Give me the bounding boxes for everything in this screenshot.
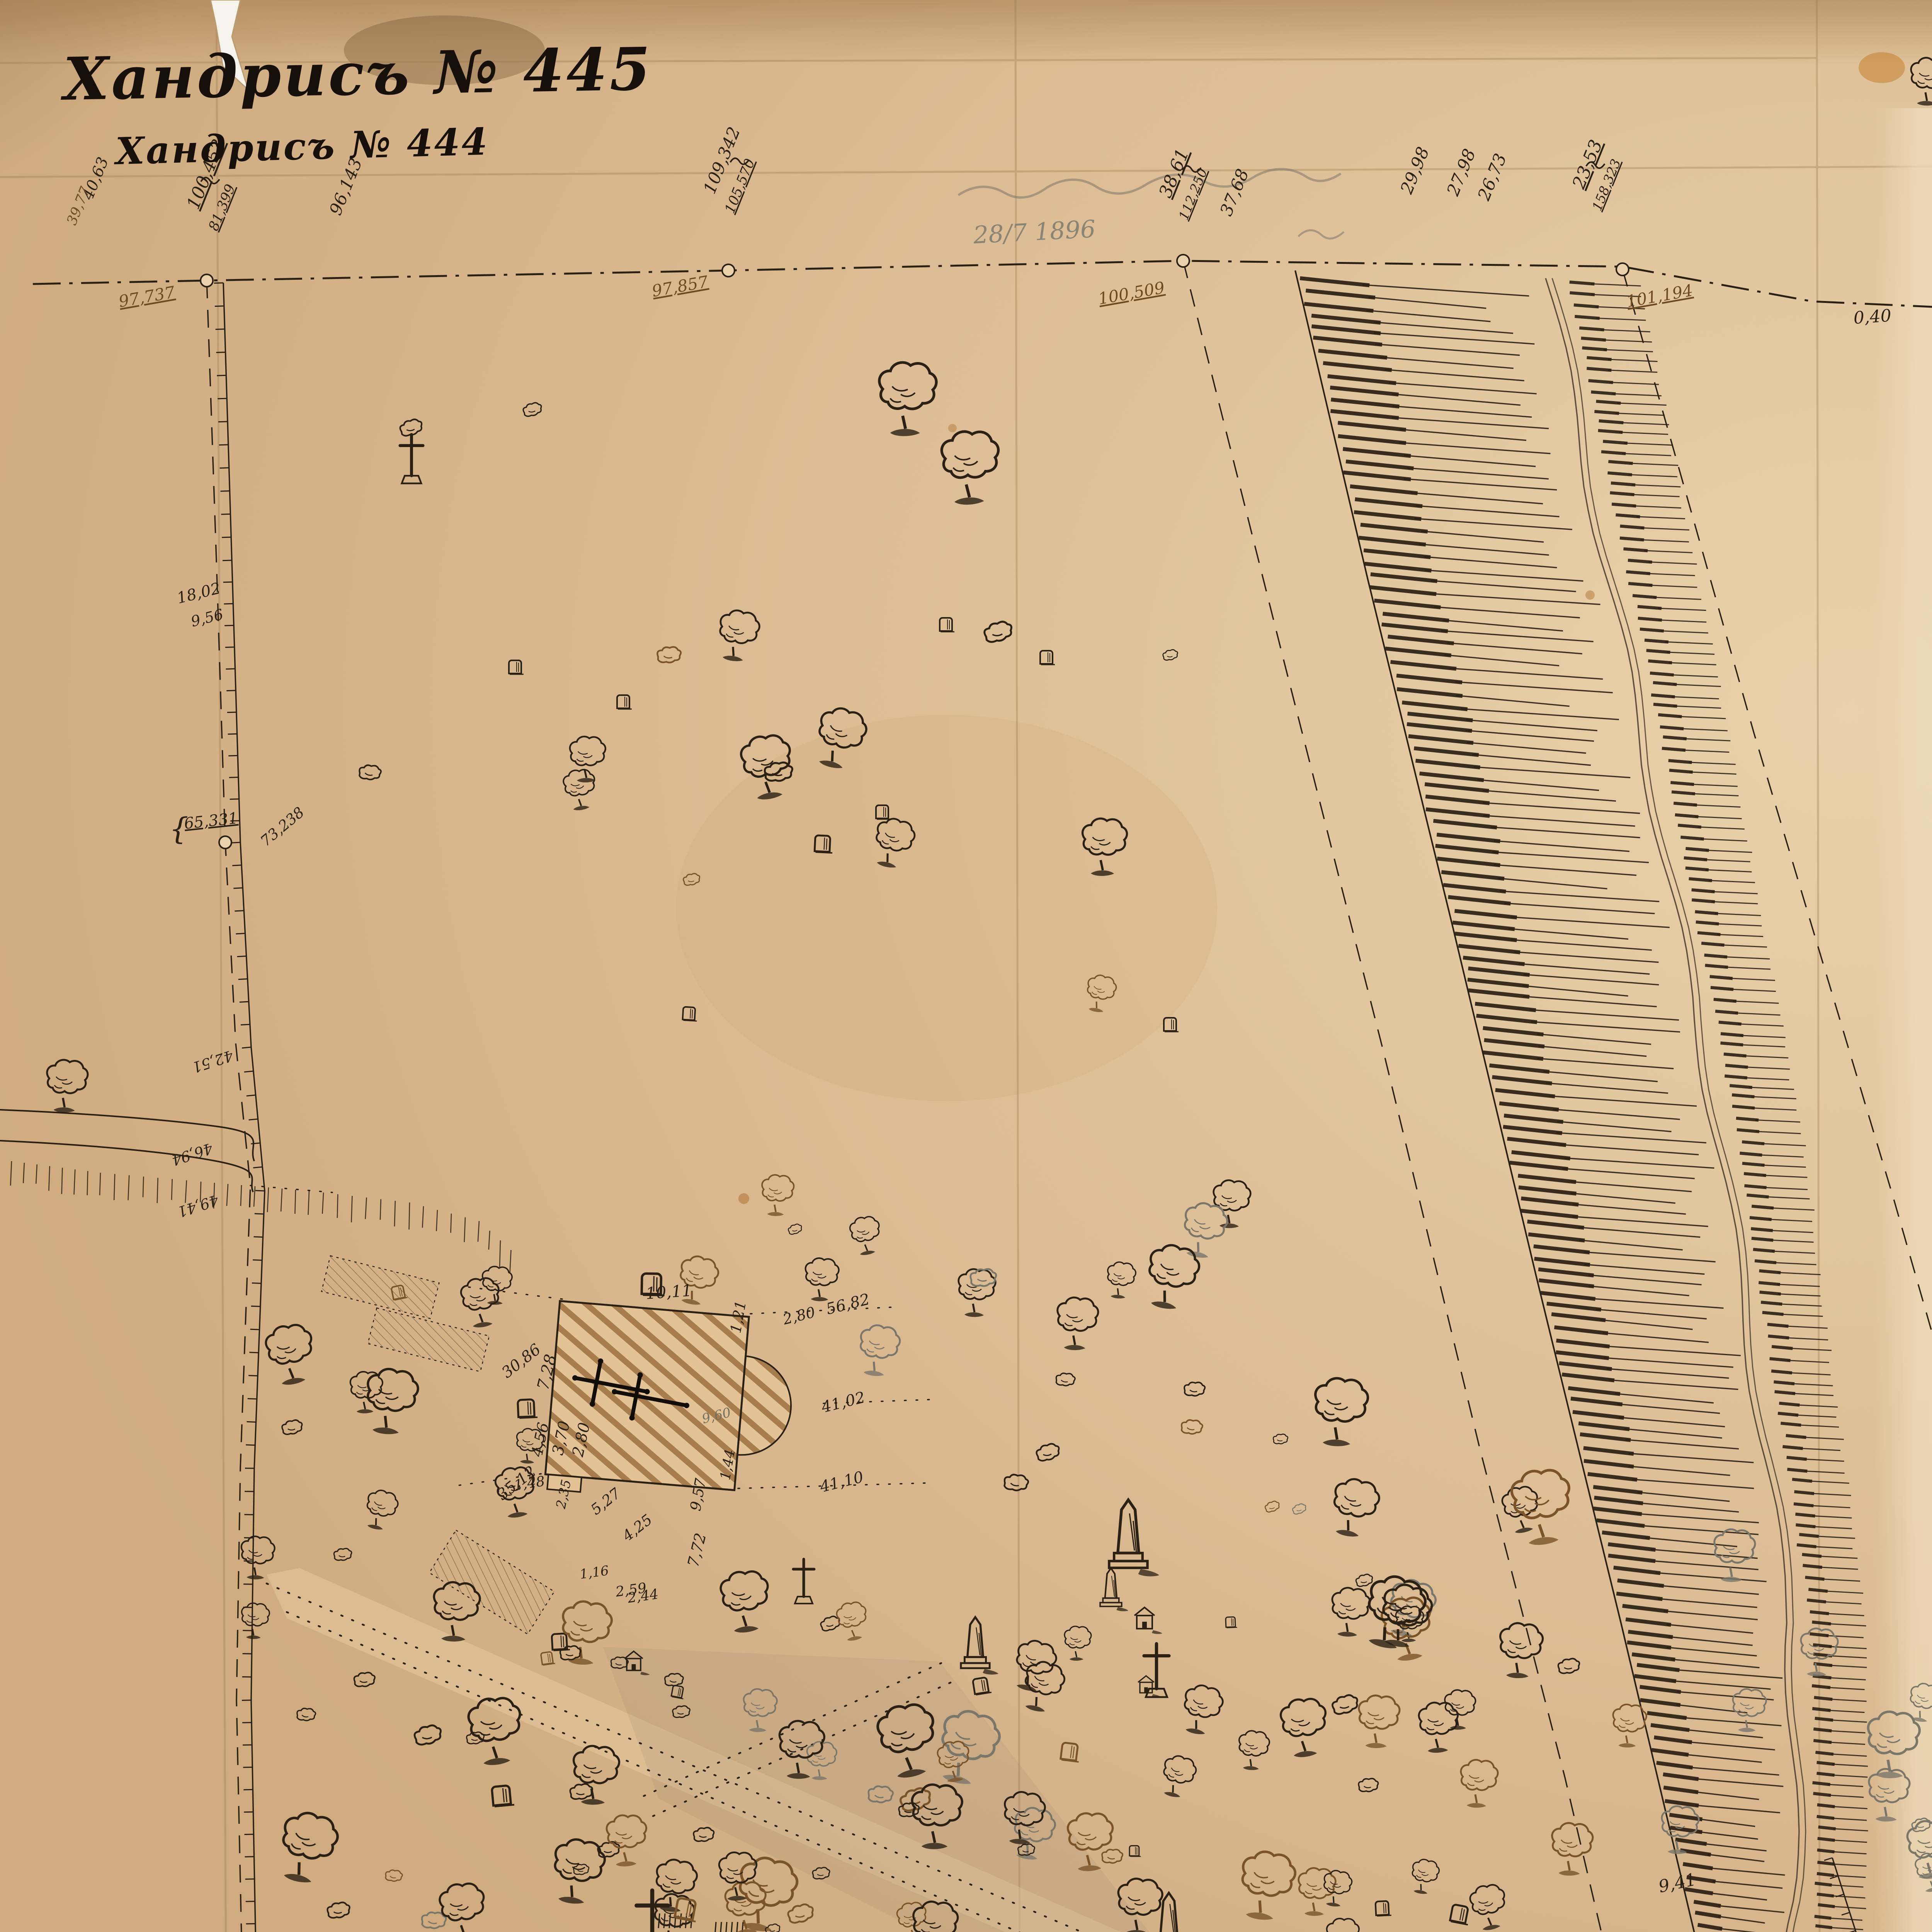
fence-tick bbox=[232, 865, 241, 866]
hachure bbox=[1675, 815, 1698, 817]
fence-tick bbox=[219, 445, 228, 445]
hachure bbox=[1742, 1142, 1764, 1144]
grass-tick bbox=[62, 1168, 63, 1194]
fence-tick bbox=[230, 799, 239, 799]
hachure bbox=[1695, 912, 1718, 913]
hachure bbox=[1752, 1206, 1774, 1208]
hachure bbox=[1684, 858, 1707, 860]
hachure bbox=[1808, 1589, 1828, 1591]
hachure bbox=[1770, 1359, 1791, 1361]
hachure bbox=[1582, 348, 1607, 350]
hachure bbox=[1817, 1762, 1835, 1764]
hachure bbox=[1762, 1313, 1784, 1315]
hachure bbox=[1720, 1043, 1743, 1045]
hachure bbox=[1658, 715, 1682, 717]
fence-tick bbox=[248, 1376, 258, 1376]
hachure bbox=[1747, 1195, 1769, 1197]
hachure bbox=[1812, 1622, 1831, 1624]
hachure bbox=[1750, 1218, 1772, 1219]
hachure bbox=[1672, 792, 1695, 794]
fence-tick bbox=[240, 1002, 249, 1002]
hachure bbox=[1678, 825, 1701, 827]
hachure bbox=[1624, 549, 1648, 551]
hachure bbox=[1650, 673, 1674, 675]
fence-tick bbox=[227, 712, 236, 713]
hachure bbox=[1610, 493, 1634, 495]
hachure bbox=[1608, 473, 1632, 475]
hachure bbox=[1810, 1634, 1829, 1636]
hachure bbox=[1815, 1916, 1831, 1918]
hachure bbox=[1721, 1034, 1743, 1036]
hachure bbox=[1653, 704, 1677, 706]
hachure bbox=[1767, 1324, 1789, 1326]
hachure bbox=[1640, 629, 1664, 631]
hachure bbox=[1737, 1130, 1759, 1132]
hachure bbox=[1768, 1336, 1789, 1338]
hachure bbox=[1817, 1773, 1835, 1775]
hachure bbox=[1620, 538, 1644, 540]
hachure bbox=[1714, 999, 1736, 1001]
hachure bbox=[1603, 441, 1627, 443]
hachure bbox=[1704, 955, 1727, 957]
hachure bbox=[1579, 328, 1604, 330]
hachure bbox=[1725, 1076, 1747, 1078]
hachure bbox=[1753, 1249, 1775, 1251]
hachure bbox=[1574, 305, 1599, 307]
hachure bbox=[1587, 358, 1612, 360]
map-annotation: 10,11 bbox=[645, 1281, 692, 1303]
survey-point bbox=[201, 274, 213, 287]
hachure bbox=[1599, 421, 1624, 423]
hachure bbox=[1628, 583, 1652, 585]
sheet-title: Хандрисъ № 445 bbox=[60, 34, 653, 114]
fence-tick bbox=[254, 1237, 263, 1237]
hachure bbox=[1692, 890, 1715, 892]
fence-tick bbox=[216, 352, 226, 353]
hachure bbox=[1611, 483, 1635, 485]
hachure bbox=[1732, 1106, 1755, 1108]
hachure bbox=[1802, 1554, 1821, 1556]
hachure bbox=[1608, 461, 1633, 463]
fence-tick bbox=[225, 647, 235, 648]
church-nave bbox=[545, 1301, 749, 1490]
hachure bbox=[1812, 1709, 1830, 1711]
hachure bbox=[1761, 1302, 1782, 1304]
fence-tick bbox=[214, 283, 223, 283]
fence-tick bbox=[222, 537, 231, 537]
hachure bbox=[1787, 1469, 1807, 1471]
hachure bbox=[1626, 572, 1650, 574]
hachure bbox=[1711, 988, 1733, 990]
survey-point bbox=[1616, 263, 1629, 276]
hachure bbox=[1596, 401, 1621, 403]
hachure bbox=[1660, 727, 1684, 729]
grass-tick bbox=[295, 1190, 296, 1214]
hachure bbox=[1680, 837, 1704, 839]
fence-tick bbox=[233, 888, 243, 888]
hachure bbox=[1715, 1011, 1738, 1013]
hachure bbox=[1792, 1479, 1812, 1481]
fence-tick bbox=[237, 956, 247, 956]
hachure bbox=[1570, 293, 1595, 295]
fence-tick bbox=[226, 669, 235, 669]
hachure bbox=[1744, 1186, 1766, 1188]
hachure bbox=[1616, 515, 1640, 517]
hachure bbox=[1663, 737, 1687, 739]
fence-tick bbox=[218, 398, 227, 399]
hachure bbox=[1710, 976, 1733, 978]
fence-tick bbox=[224, 625, 234, 626]
hachure bbox=[1815, 1926, 1832, 1928]
fence-tick bbox=[255, 1214, 264, 1214]
hachure bbox=[1612, 504, 1636, 506]
hachure bbox=[1782, 1447, 1803, 1449]
hachure bbox=[1638, 607, 1662, 609]
hachure bbox=[1814, 1697, 1833, 1699]
hachure bbox=[1787, 1458, 1807, 1459]
survey-point bbox=[1177, 255, 1189, 267]
hachure bbox=[1799, 1534, 1819, 1536]
hachure bbox=[1815, 1883, 1832, 1885]
grass-tick bbox=[143, 1177, 143, 1197]
hachure bbox=[1772, 1347, 1793, 1349]
hachure bbox=[1719, 1022, 1742, 1024]
hachure bbox=[1818, 1827, 1836, 1829]
fence-tick bbox=[221, 491, 230, 492]
hachure bbox=[1601, 452, 1626, 454]
hachure bbox=[1646, 650, 1670, 652]
fence-tick bbox=[226, 690, 236, 691]
grass-tick bbox=[172, 1179, 172, 1200]
hachure bbox=[1742, 1163, 1765, 1165]
hachure bbox=[1705, 965, 1728, 967]
hachure bbox=[1810, 1612, 1829, 1614]
hachure bbox=[1778, 1413, 1798, 1415]
hachure bbox=[1651, 695, 1675, 697]
hachure bbox=[1689, 879, 1712, 881]
map-annotation: 0,40 bbox=[1853, 306, 1892, 328]
fence-tick bbox=[236, 934, 245, 934]
hachure bbox=[1581, 338, 1606, 340]
hachure bbox=[1815, 1752, 1833, 1754]
fence-tick bbox=[246, 1445, 255, 1445]
hachure bbox=[1817, 1805, 1835, 1807]
hachure bbox=[1812, 1686, 1830, 1688]
hachure bbox=[1696, 922, 1719, 924]
hachure bbox=[1817, 1850, 1835, 1852]
fence-tick bbox=[241, 1024, 250, 1025]
grass-tick bbox=[157, 1178, 158, 1203]
hachure bbox=[1570, 282, 1595, 284]
hachure bbox=[1794, 1492, 1814, 1493]
hachure bbox=[1620, 526, 1645, 528]
fence-tick bbox=[229, 777, 238, 778]
survey-point bbox=[219, 836, 231, 849]
hachure bbox=[1817, 1816, 1834, 1818]
fence-tick bbox=[231, 842, 240, 843]
hachure bbox=[1817, 1874, 1834, 1876]
hachure bbox=[1794, 1504, 1813, 1506]
hachure bbox=[1692, 900, 1715, 902]
hachure bbox=[1648, 661, 1672, 663]
hachure bbox=[1781, 1423, 1801, 1425]
grass-tick bbox=[337, 1194, 338, 1218]
hachure bbox=[1774, 1382, 1795, 1384]
hachure bbox=[1725, 1065, 1748, 1067]
hachure bbox=[1795, 1514, 1815, 1516]
fence-tick bbox=[251, 1306, 260, 1306]
hachure bbox=[1813, 1740, 1832, 1742]
hachure bbox=[1815, 1718, 1833, 1720]
grass-tick bbox=[87, 1171, 88, 1196]
fence-tick bbox=[249, 1352, 259, 1353]
map-canvas: 40,6339,77100,45381,39997,73796,143109,3… bbox=[0, 0, 1932, 1932]
hachure bbox=[1760, 1292, 1781, 1294]
hachure bbox=[1673, 803, 1697, 805]
fence-tick bbox=[252, 1283, 261, 1283]
fence-tick bbox=[228, 734, 237, 734]
hachure bbox=[1813, 1782, 1830, 1784]
hachure bbox=[1818, 1838, 1835, 1840]
hachure bbox=[1662, 748, 1685, 750]
hachure bbox=[1638, 618, 1662, 620]
fence-tick bbox=[255, 1190, 265, 1191]
hachure bbox=[1786, 1435, 1806, 1437]
fence-tick bbox=[218, 422, 228, 422]
fence-tick bbox=[238, 979, 248, 979]
fence-tick bbox=[216, 329, 225, 330]
fence-tick bbox=[221, 514, 230, 514]
fence-tick bbox=[217, 375, 226, 376]
hachure bbox=[1744, 1173, 1766, 1175]
hachure bbox=[1628, 560, 1652, 562]
fence-tick bbox=[215, 306, 224, 306]
survey-point bbox=[722, 264, 735, 277]
hachure bbox=[1779, 1403, 1799, 1405]
hachure bbox=[1751, 1229, 1772, 1231]
hachure bbox=[1803, 1565, 1822, 1567]
hachure bbox=[1591, 392, 1616, 394]
fence-tick bbox=[223, 582, 233, 582]
hachure bbox=[1813, 1729, 1832, 1731]
hachure bbox=[1598, 430, 1622, 432]
hachure bbox=[1730, 1085, 1752, 1087]
fence-tick bbox=[235, 911, 244, 911]
hachure bbox=[1685, 868, 1709, 870]
fence-tick bbox=[220, 468, 229, 468]
hachure bbox=[1736, 1118, 1759, 1120]
hachure bbox=[1724, 1054, 1747, 1056]
hachure bbox=[1575, 316, 1599, 318]
fence-tick bbox=[228, 755, 238, 756]
hachure bbox=[1818, 1905, 1835, 1906]
hachure bbox=[1755, 1261, 1776, 1263]
hachure bbox=[1588, 381, 1613, 383]
fence-tick bbox=[253, 1260, 262, 1260]
bleached-band bbox=[1874, 108, 1932, 1932]
grass-tick bbox=[451, 1214, 451, 1233]
fence-tick bbox=[223, 560, 232, 561]
hachure bbox=[1813, 1793, 1831, 1795]
hachure bbox=[1775, 1392, 1795, 1394]
hachure bbox=[1594, 412, 1619, 413]
hachure bbox=[1759, 1271, 1781, 1273]
fence-tick bbox=[250, 1329, 260, 1330]
hachure bbox=[1771, 1371, 1792, 1373]
hachure bbox=[1645, 640, 1668, 642]
hachure bbox=[1797, 1545, 1816, 1547]
map-sheet: 40,6339,77100,45381,39997,73796,143109,3… bbox=[0, 0, 1932, 1932]
hachure bbox=[1668, 760, 1692, 762]
hachure bbox=[1653, 683, 1677, 685]
hachure bbox=[1633, 595, 1656, 597]
hachure bbox=[1740, 1153, 1762, 1155]
hachure bbox=[1670, 782, 1694, 784]
hachure bbox=[1805, 1577, 1825, 1579]
fence-tick bbox=[248, 1399, 257, 1399]
hachure bbox=[1587, 368, 1611, 370]
hachure bbox=[1752, 1238, 1773, 1240]
hachure bbox=[1759, 1282, 1780, 1284]
fence-tick bbox=[224, 604, 233, 604]
hachure bbox=[1685, 849, 1709, 850]
hachure bbox=[1807, 1600, 1826, 1602]
fence-tick bbox=[247, 1422, 256, 1422]
hachure bbox=[1701, 943, 1724, 945]
hachure bbox=[1796, 1525, 1816, 1527]
hachure bbox=[1732, 1095, 1754, 1097]
hachure bbox=[1817, 1862, 1834, 1864]
grass-tick bbox=[409, 1202, 410, 1230]
hachure bbox=[1669, 770, 1693, 772]
grass-tick bbox=[380, 1199, 381, 1219]
hachure bbox=[1697, 933, 1721, 935]
hachure bbox=[1817, 1894, 1834, 1896]
